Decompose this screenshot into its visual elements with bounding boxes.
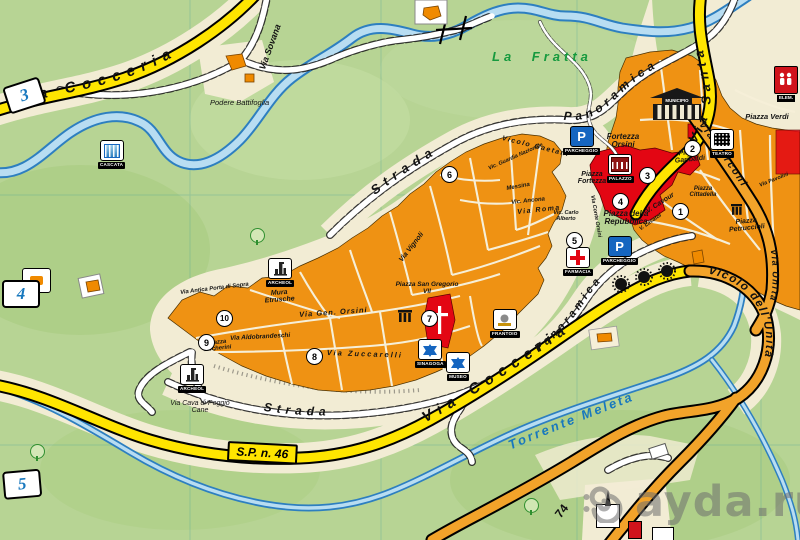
pharmacy-cross-icon [566,247,590,268]
poi-farmacia: FARMACIA [563,247,593,276]
label-podere-battifoglia: Podere Battifoglia [210,99,269,107]
label-vic-carlo-alberto: Vic. Carlo Alberto [547,211,585,223]
poi-sinagoga: SINAGOGA [415,339,446,368]
poi-archeo-north: ARCHEOL [266,258,294,287]
poi-museo-label: MUSEO [447,374,469,381]
poi-frantoio-label: FRANTOIO [490,331,520,338]
tree-icon [524,498,539,513]
edge-marker-4: 4 [2,280,40,308]
map-canvas: Via Cocceria Strada Panoramica Strada Pa… [0,0,800,540]
poi-palazzo: PALAZZO [607,154,634,183]
poi-municipio: MUNICIPIO [650,88,704,120]
marker-3: 3 [639,167,656,184]
ruins-icon [180,364,204,385]
poi-archeo-north-label: ARCHEOL [266,280,294,287]
star-of-david-icon [446,352,470,373]
poi-parking-north-label: PARCHEGGIO [563,148,600,155]
label-piazza-cittadella: Piazza Cittadella [682,186,724,199]
white-building-icon [652,527,674,540]
theater-icon [710,129,734,150]
marker-9: 9 [198,334,215,351]
marker-10: 10 [216,310,233,327]
school-children-icon [774,66,798,94]
tree-icon [30,444,45,459]
poi-elem-label: ELEM. [777,95,795,102]
label-piazza-san-gregorio: Piazza San Gregorio VII [395,282,459,296]
marker-7: 7 [421,310,438,327]
ruins-icon [268,258,292,279]
pediment-icon [650,88,704,98]
castle-icon [608,154,632,175]
marker-2: 2 [684,140,701,157]
star-of-david-icon [418,339,442,360]
poi-archeo-south-label: ARCHEOL [178,386,206,393]
label-piazza-verdi: Piazza Verdi [744,113,790,121]
poi-parking-south-label: PARCHEGGIO [601,258,638,265]
label-mura-etrusche: Mura Etrusche [257,288,302,306]
poi-parking-south: P PARCHEGGIO [601,236,638,265]
marker-5: 5 [566,232,583,249]
label-la-fratta: La Fratta [492,50,592,64]
poi-cascata: CASCATA [98,140,125,169]
parking-icon: P [570,126,594,147]
town-map: Via Cocceria Strada Panoramica Strada Pa… [0,0,800,540]
marker-4: 4 [612,193,629,210]
watermark: ayda.ru [583,477,800,527]
marker-1: 1 [672,203,689,220]
label-fortezza-orsini: Fortezza Orsini [596,133,650,150]
poi-parking-north: P PARCHEGGIO [563,126,600,155]
route-box-sp46: S.P. n. 46 [227,441,298,465]
parking-icon: P [608,236,632,257]
spiral-logo-icon [583,481,625,523]
marker-8: 8 [306,348,323,365]
poi-frantoio: FRANTOIO [490,309,520,338]
poi-palazzo-label: PALAZZO [607,176,634,183]
label-via-cava: Via Cava di Poggio Cane [168,400,232,415]
poi-farmacia-label: FARMACIA [563,269,593,276]
poi-elem-school: ELEM. [774,66,798,102]
poi-cascata-label: CASCATA [98,162,125,169]
poi-teatro-label: TEATRO [710,151,734,158]
poi-museo: MUSEO [446,352,470,381]
poi-archeo-south: ARCHEOL [178,364,206,393]
olive-press-icon [493,309,517,330]
poi-sinagoga-label: SINAGOGA [415,361,446,368]
edge-marker-5: 5 [2,469,42,500]
tree-icon [250,228,265,243]
waterfall-icon [100,140,124,161]
watermark-text: ayda.ru [635,477,800,527]
columns-icon [653,104,701,120]
poi-teatro: TEATRO [710,129,734,158]
marker-6: 6 [441,166,458,183]
